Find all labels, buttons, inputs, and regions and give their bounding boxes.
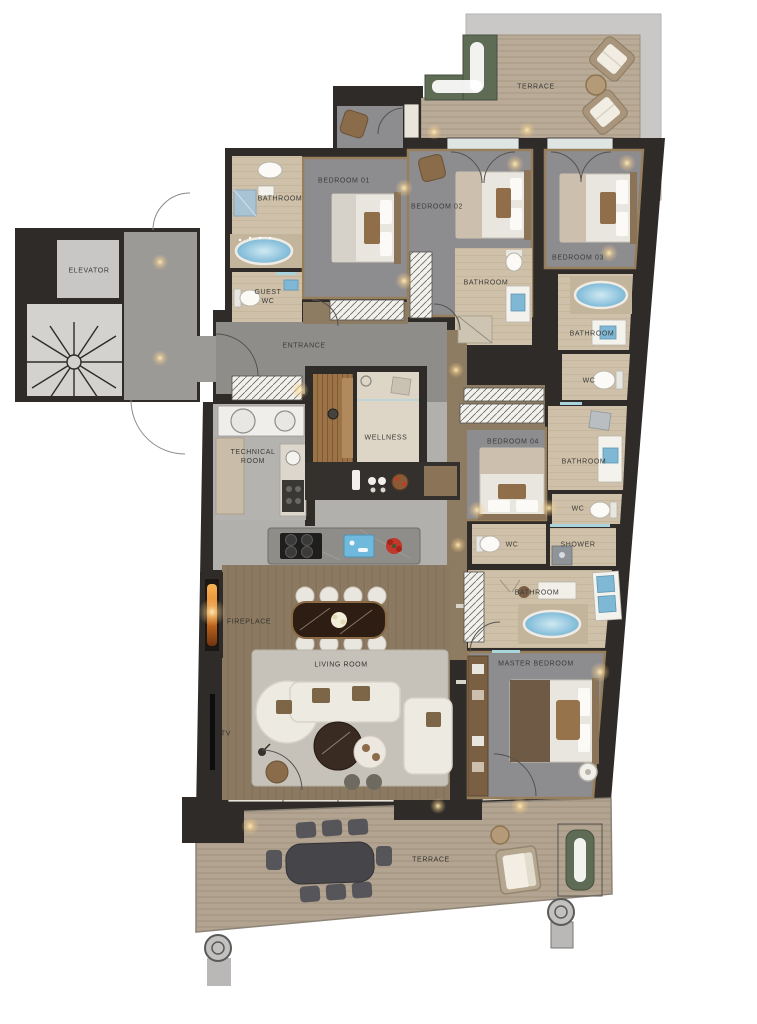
wellness-block (305, 366, 427, 470)
room-label-tv: TV (221, 731, 231, 738)
room-label-technical-room: TECHNICAL ROOM (222, 448, 284, 466)
room-label-bathroom-2: BATHROOM (464, 280, 509, 287)
bathtub-1 (236, 238, 292, 264)
bedroom-04-bed (478, 448, 546, 520)
master-bathtub (524, 611, 580, 637)
room-label-wc-3: WC (506, 542, 519, 549)
support-column-left (205, 935, 231, 986)
bedroom-03-bed (560, 172, 637, 244)
room-label-shower: SHOWER (560, 542, 595, 549)
room-label-master-bedroom: MASTER BEDROOM (498, 661, 574, 668)
room-label-entrance: ENTRANCE (282, 343, 325, 350)
stool (266, 761, 288, 783)
room-label-wc-1: WC (583, 378, 596, 385)
wc-1-fixtures (593, 371, 623, 389)
living-room-furniture (252, 650, 452, 790)
room-label-bedroom-01: BEDROOM 01 (318, 178, 370, 185)
terrace-bottom-side-table (491, 826, 509, 844)
room-label-bedroom-02: BEDROOM 02 (411, 204, 463, 211)
tv (210, 694, 215, 770)
sofa (290, 682, 400, 722)
room-label-fireplace: FIREPLACE (227, 619, 271, 626)
kitchen-island (268, 528, 420, 564)
master-wardrobe (468, 656, 488, 796)
terrace-top-side-table (586, 75, 606, 95)
room-label-bedroom-03: BEDROOM 03 (552, 255, 604, 262)
sofa-right (404, 698, 452, 774)
coffee-table-2 (354, 736, 386, 768)
support-column-right (548, 899, 574, 948)
bedroom-02-chair (417, 153, 446, 182)
floor-plan: TERRACE BATHROOM BEDROOM 01 BEDROOM 02 B… (0, 0, 757, 1024)
wc-2-fixtures (590, 502, 617, 518)
wc-3-fixtures (476, 536, 500, 552)
room-label-bathroom-3: BATHROOM (570, 331, 615, 338)
room-label-elevator: ELEVATOR (69, 268, 110, 275)
room-label-terrace-top: TERRACE (517, 84, 555, 91)
room-label-bedroom-04: BEDROOM 04 (487, 439, 539, 446)
spiral-staircase (27, 304, 122, 398)
room-label-bathroom-1: BATHROOM (258, 196, 303, 203)
terrace-bottom-lounger (495, 845, 541, 894)
island-sink (344, 535, 374, 557)
bathtub-3 (575, 282, 627, 308)
room-label-bathroom-5: BATHROOM (515, 590, 560, 597)
fireplace (198, 572, 226, 658)
room-label-guest-wc: GUEST WC (247, 288, 289, 306)
room-label-wc-2: WC (572, 506, 585, 513)
floor-plan-graphic (0, 0, 757, 1024)
room-label-bathroom-4: BATHROOM (562, 459, 607, 466)
room-label-terrace-bottom: TERRACE (412, 857, 450, 864)
room-label-living-room: LIVING ROOM (314, 662, 367, 669)
room-label-wellness: WELLNESS (365, 435, 408, 442)
